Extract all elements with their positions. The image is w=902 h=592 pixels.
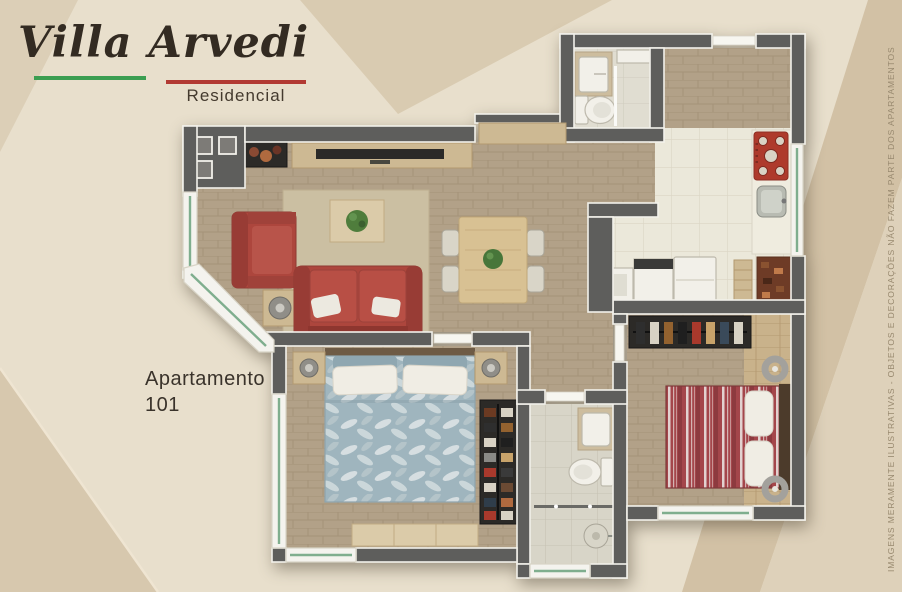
shower-bench bbox=[617, 50, 650, 63]
tv bbox=[316, 149, 444, 159]
brand-underline-red bbox=[166, 80, 306, 84]
floor-plan-poster: Villa Arvedi Residencial Apartamento 101… bbox=[0, 0, 902, 592]
entry-sideboard-bench bbox=[479, 123, 566, 144]
cooktop bbox=[754, 132, 788, 180]
wardrobe-bedroom2 bbox=[629, 316, 751, 348]
nightstand-right bbox=[475, 352, 507, 384]
unit-label: Apartamento 101 bbox=[145, 366, 265, 418]
bedroom1-door bbox=[434, 334, 472, 343]
brand-underline-green bbox=[34, 76, 146, 80]
bed1-pillow bbox=[333, 365, 398, 395]
armchair bbox=[232, 212, 296, 288]
sideboard-with-flowers bbox=[240, 142, 287, 167]
dresser bbox=[352, 524, 478, 546]
service-shelf bbox=[734, 260, 752, 300]
table-centerpiece-plant bbox=[483, 249, 503, 269]
tv-stand bbox=[370, 160, 390, 164]
dining-chair bbox=[527, 266, 544, 292]
hallway-floor bbox=[530, 312, 613, 394]
disclaimer-text: IMAGENS MERAMENTE ILUSTRATIVAS - OBJETOS… bbox=[886, 168, 896, 572]
unit-label-line1: Apartamento bbox=[145, 366, 265, 392]
coffee-table bbox=[330, 200, 384, 242]
entry-strip-floor bbox=[575, 142, 655, 203]
kitchen-sink bbox=[757, 186, 787, 217]
entry-door bbox=[713, 36, 755, 45]
bedroom2-door bbox=[615, 325, 624, 361]
toilet bbox=[569, 458, 613, 486]
plant bbox=[346, 210, 368, 232]
dining-chair bbox=[442, 230, 459, 256]
brand-subtitle: Residencial bbox=[166, 86, 306, 106]
bathroom2-sink bbox=[582, 413, 610, 446]
wardrobe-bedroom1 bbox=[480, 400, 517, 524]
bed2-pillow bbox=[745, 391, 773, 436]
round-rug-bottom bbox=[765, 479, 785, 499]
unit-label-line2: 101 bbox=[145, 392, 265, 418]
side-table-with-lamp bbox=[263, 290, 297, 326]
service-rug bbox=[757, 257, 791, 304]
round-rug-top bbox=[765, 359, 785, 379]
wall-niche bbox=[219, 137, 236, 154]
shower-glass bbox=[614, 66, 617, 126]
sofa bbox=[294, 266, 422, 340]
shower-divider bbox=[534, 505, 613, 508]
bed1-pillow bbox=[403, 365, 468, 395]
toilet bbox=[575, 96, 615, 124]
washing-machine bbox=[634, 259, 673, 304]
bed2-headboard bbox=[779, 384, 791, 490]
nightstand-left bbox=[293, 352, 325, 384]
dining-chair bbox=[527, 230, 544, 256]
bathroom2-door bbox=[546, 392, 584, 401]
brand-title: Villa Arvedi bbox=[18, 22, 309, 65]
brand-logo: Villa Arvedi Residencial bbox=[14, 10, 324, 106]
dining-chair bbox=[442, 266, 459, 292]
entry-hall-floor bbox=[655, 48, 791, 128]
